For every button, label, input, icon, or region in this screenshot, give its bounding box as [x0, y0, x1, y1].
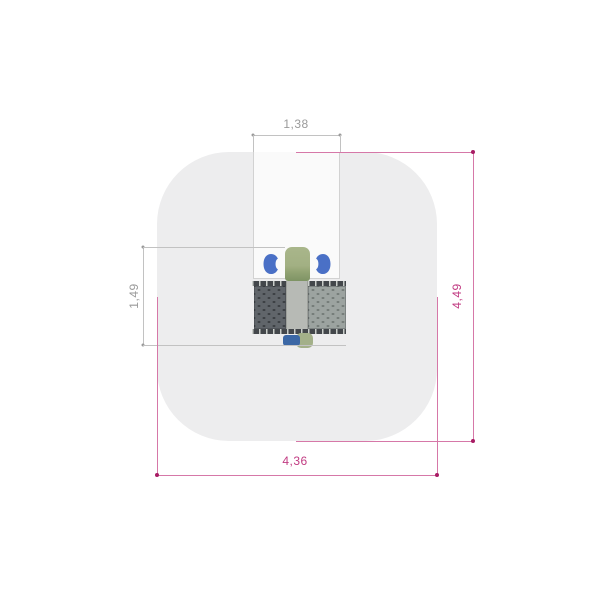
extension-line — [157, 297, 158, 475]
extension-line — [143, 345, 346, 346]
seat-grip-left-icon — [263, 253, 279, 275]
dimension-endpoint-dot — [471, 150, 475, 154]
dimension-label-equipment-width: 1,38 — [266, 117, 326, 131]
tread-panel-right — [308, 286, 346, 329]
dimension-endpoint-dot — [471, 439, 475, 443]
dimension-endpoint-dot — [435, 473, 439, 477]
dimension-label-zone-width: 4,36 — [265, 454, 325, 468]
dimension-line — [157, 475, 437, 476]
extension-line — [296, 152, 473, 153]
dimension-line — [253, 135, 340, 136]
equipment-backrest — [285, 247, 310, 281]
dimension-endpoint-dot — [155, 473, 159, 477]
plan-view-drawing: 1,38 1,49 4,49 4,36 — [0, 0, 600, 600]
extension-line — [340, 135, 341, 152]
extension-line — [296, 441, 473, 442]
dimension-line — [473, 152, 474, 441]
dimension-label-equipment-depth: 1,49 — [127, 266, 141, 326]
seat-grip-right-icon — [315, 253, 331, 275]
extension-line — [143, 247, 285, 248]
dimension-line — [143, 247, 144, 345]
extension-line — [253, 135, 254, 152]
dimension-label-zone-height: 4,49 — [450, 266, 464, 326]
tread-panel-left — [254, 286, 286, 329]
extension-line — [437, 297, 438, 475]
platform-deck-center — [286, 281, 308, 334]
